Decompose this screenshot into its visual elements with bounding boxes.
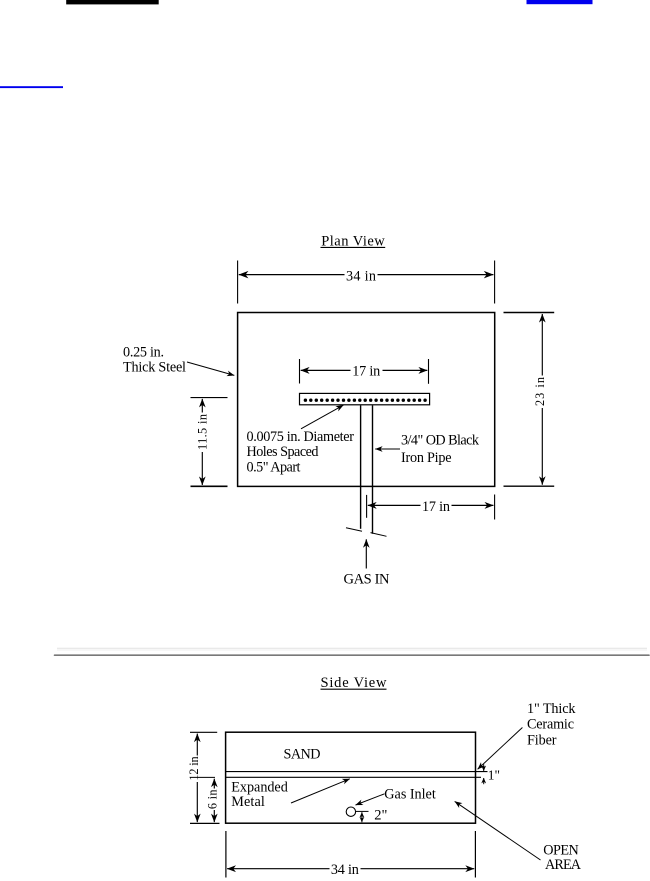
svg-text:Iron Pipe: Iron Pipe [401,450,452,466]
svg-text:Ceramic: Ceramic [527,717,574,733]
svg-text:Holes Spaced: Holes Spaced [247,444,319,460]
svg-text:34 in: 34 in [346,268,376,284]
svg-text:1" Thick: 1" Thick [527,701,576,717]
svg-text:AREA: AREA [545,857,582,873]
svg-text:2": 2" [374,808,387,824]
svg-text:11.5 in: 11.5 in [195,414,209,450]
svg-text:0.25 in.: 0.25 in. [123,345,164,361]
svg-text:17 in: 17 in [352,364,380,380]
svg-text:17 in: 17 in [422,499,450,515]
svg-text:Side View: Side View [321,675,388,691]
svg-text:Gas Inlet: Gas Inlet [384,787,436,803]
svg-text:0.0075 in. Diameter: 0.0075 in. Diameter [247,429,355,445]
svg-text:Metal: Metal [231,794,265,810]
svg-text:23 in: 23 in [533,377,547,406]
svg-text:3/4" OD Black: 3/4" OD Black [401,433,480,449]
svg-text:34 in: 34 in [331,862,359,878]
svg-text:6 in: 6 in [206,789,220,809]
svg-text:Thick Steel: Thick Steel [123,360,186,376]
svg-text:Fiber: Fiber [527,733,557,749]
svg-text:SAND: SAND [284,746,321,762]
svg-text:1": 1" [488,768,500,783]
svg-text:GAS IN: GAS IN [344,572,391,588]
svg-text:0.5" Apart: 0.5" Apart [247,460,301,476]
